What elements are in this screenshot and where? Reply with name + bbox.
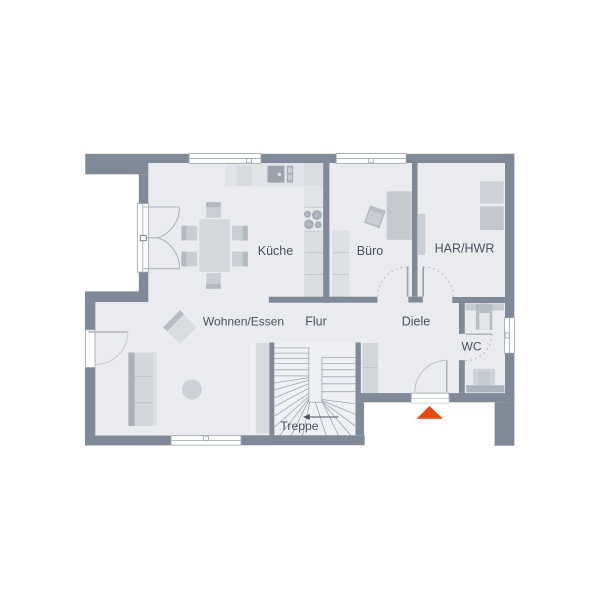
svg-text:HAR/HWR: HAR/HWR [435, 242, 495, 256]
svg-text:Küche: Küche [258, 244, 293, 258]
svg-text:Diele: Diele [402, 315, 431, 329]
svg-text:Wohnen/Essen: Wohnen/Essen [203, 315, 284, 329]
svg-text:Büro: Büro [357, 244, 383, 258]
svg-text:Flur: Flur [305, 315, 327, 329]
svg-text:WC: WC [462, 340, 482, 354]
svg-text:Treppe: Treppe [280, 419, 318, 433]
